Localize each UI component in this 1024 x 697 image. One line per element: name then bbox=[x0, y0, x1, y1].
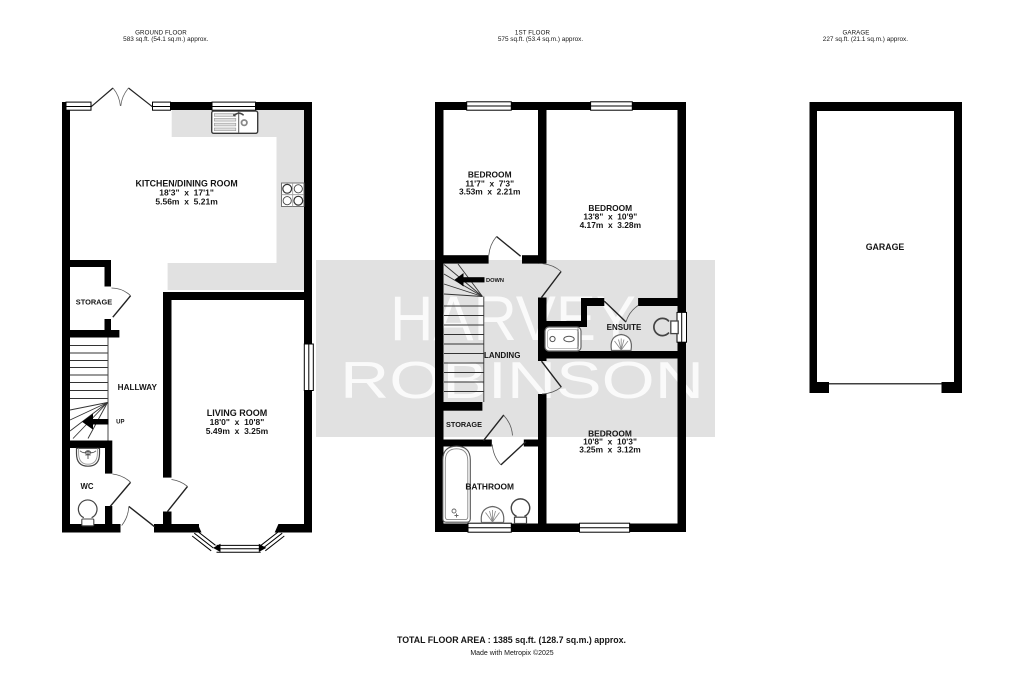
svg-text:LANDING: LANDING bbox=[484, 351, 520, 360]
svg-text:STORAGE: STORAGE bbox=[76, 297, 112, 306]
svg-text:5.56m x 5.21m: 5.56m x 5.21m bbox=[155, 196, 218, 206]
svg-text:ENSUITE: ENSUITE bbox=[607, 323, 642, 332]
svg-text:5.49m x 3.25m: 5.49m x 3.25m bbox=[206, 426, 269, 436]
svg-text:HALLWAY: HALLWAY bbox=[118, 383, 158, 392]
svg-text:3.53m x 2.21m: 3.53m x 2.21m bbox=[459, 187, 520, 197]
svg-text:BATHROOM: BATHROOM bbox=[465, 482, 514, 492]
svg-text:227 sq.ft. (21.1 sq.m.) approx: 227 sq.ft. (21.1 sq.m.) approx. bbox=[823, 36, 908, 43]
svg-text:TOTAL FLOOR AREA : 1385 sq.ft.: TOTAL FLOOR AREA : 1385 sq.ft. (128.7 sq… bbox=[397, 635, 626, 646]
svg-text:575 sq.ft. (53.4 sq.m.) approx: 575 sq.ft. (53.4 sq.m.) approx. bbox=[498, 36, 583, 43]
svg-text:4.17m x 3.28m: 4.17m x 3.28m bbox=[580, 220, 641, 230]
svg-text:UP: UP bbox=[116, 420, 124, 426]
svg-text:Made with Metropix ©2025: Made with Metropix ©2025 bbox=[470, 649, 553, 657]
svg-text:3.25m x 3.12m: 3.25m x 3.12m bbox=[579, 445, 640, 455]
svg-text:GARAGE: GARAGE bbox=[866, 242, 905, 252]
svg-text:HARVEY: HARVEY bbox=[390, 284, 636, 354]
svg-text:DOWN: DOWN bbox=[486, 278, 504, 284]
svg-text:STORAGE: STORAGE bbox=[446, 420, 482, 429]
svg-text:583 sq.ft. (54.1 sq.m.) approx: 583 sq.ft. (54.1 sq.m.) approx. bbox=[123, 36, 208, 43]
svg-text:WC: WC bbox=[81, 482, 94, 491]
svg-text:ROBINSON: ROBINSON bbox=[340, 352, 704, 410]
